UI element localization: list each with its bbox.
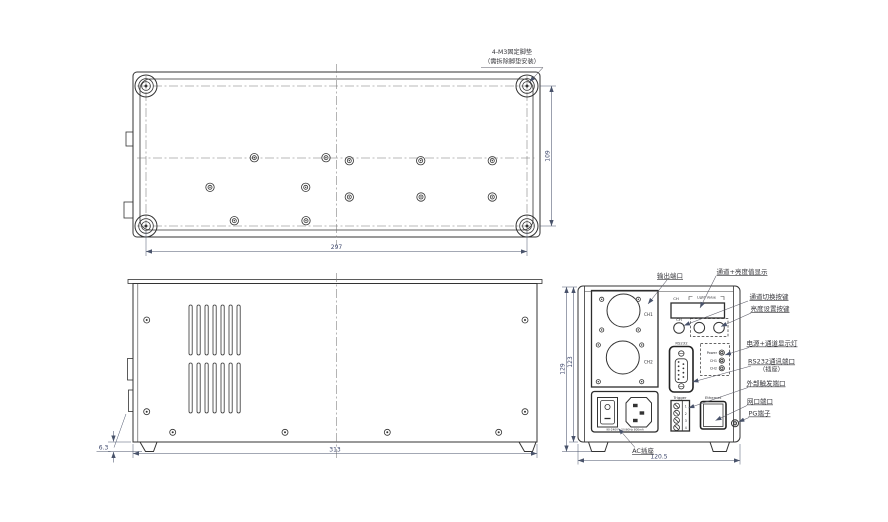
ac-rating: 90-240V~ 50/60Hz 800mA xyxy=(606,427,644,431)
led-indicators: Power CH1 CH2 xyxy=(701,344,730,376)
ac-inlet xyxy=(626,398,652,428)
trigger-label: Trigger xyxy=(672,395,687,400)
trigger-pin-1: 1 xyxy=(685,405,687,409)
dim-height-129: 129 xyxy=(560,287,593,452)
brightness-buttons-box xyxy=(691,319,729,337)
ethernet-port: Ethernet xyxy=(701,395,727,429)
callout-channel-switch: 通道切换按键 xyxy=(750,292,790,301)
callout-lan-port: 网口端口 xyxy=(747,397,773,406)
rear-panel-view: CH1 CH2 CH Light Value CH RS232 xyxy=(560,286,741,465)
display-window xyxy=(671,303,725,318)
rs232-connector: RS232 xyxy=(670,341,694,393)
brightness-up-button xyxy=(694,322,705,333)
drawing-page: 4-M3固定脚垫 （需拆除脚垫安装） 297 109 xyxy=(0,0,888,522)
panel-outline xyxy=(578,286,740,442)
ch2-label: CH2 xyxy=(644,360,653,365)
ch1-label: CH1 xyxy=(644,312,653,317)
ch1-output-connector xyxy=(607,294,640,327)
power-entry-module: 90-240V~ 50/60Hz 800mA xyxy=(592,392,659,433)
side-tab xyxy=(126,132,133,146)
dim-height-123: 123 xyxy=(567,287,578,442)
callout-trigger-port: 外部触发端口 xyxy=(747,379,786,388)
callout-output-port: 输出端口 xyxy=(657,271,683,280)
switch-off-symbol xyxy=(605,404,610,409)
rs232-label: RS232 xyxy=(675,341,688,346)
callout-ac-socket: AC插座 xyxy=(632,446,654,455)
bottom-view: 4-M3固定脚垫 （需拆除脚垫安装） 297 109 xyxy=(124,48,556,256)
plate-screw-holes xyxy=(596,297,644,384)
btn-ch-label: CH xyxy=(676,317,682,322)
note-line2: （需拆除脚垫安装） xyxy=(484,58,540,66)
display-ch-label: CH xyxy=(673,296,679,301)
side-view: 6.3 313 xyxy=(97,273,543,463)
dim-height-109: 109 xyxy=(540,86,556,226)
ch2-output-connector xyxy=(606,341,639,374)
svg-text:6.3: 6.3 xyxy=(99,445,109,452)
chassis-foot xyxy=(710,442,730,452)
brightness-down-button xyxy=(714,322,725,333)
pg-terminal xyxy=(732,420,739,427)
dim-width-297: 297 xyxy=(146,231,527,256)
output-connector-plate: CH1 CH2 xyxy=(592,291,659,388)
callout-rs232-line1: RS232通讯端口 xyxy=(748,357,795,366)
svg-text:297: 297 xyxy=(331,244,343,251)
side-outline xyxy=(133,284,537,443)
callout-display: 通道+亮度值显示 xyxy=(717,267,768,276)
trigger-terminal: Trigger 1 2 3 4 xyxy=(671,395,690,431)
note-line1: 4-M3固定脚垫 xyxy=(492,48,533,56)
dim-foot-6_3: 6.3 xyxy=(97,414,143,463)
callout-rs232-line2: （插座） xyxy=(759,366,784,374)
display-area: CH Light Value CH xyxy=(671,296,728,337)
engineering-drawing: 4-M3固定脚垫 （需拆除脚垫安装） 297 109 xyxy=(0,0,888,522)
dim-width-120_5: 120.5 xyxy=(578,444,740,465)
side-tab xyxy=(124,202,133,218)
callout-brightness-set: 亮度设置按键 xyxy=(751,304,791,313)
svg-text:109: 109 xyxy=(545,150,552,162)
rs232-pins xyxy=(678,361,685,380)
svg-text:313: 313 xyxy=(329,447,341,454)
callout-pg-terminal: PG端子 xyxy=(749,409,771,418)
bottom-screws xyxy=(206,154,497,225)
led-ch2-label: CH2 xyxy=(710,367,717,371)
channel-switch-button xyxy=(674,323,685,334)
top-lip xyxy=(128,280,542,284)
side-screws xyxy=(144,317,528,435)
trigger-pin-3: 3 xyxy=(685,419,687,423)
display-value-label: Light Value xyxy=(697,296,716,300)
led-ch1-label: CH1 xyxy=(710,359,717,363)
centerlines xyxy=(137,64,536,246)
rear-connector-profile xyxy=(128,359,134,381)
dim-width-313: 313 xyxy=(133,444,537,458)
chassis-foot xyxy=(589,442,609,452)
chassis-foot xyxy=(519,442,536,452)
chassis-foot xyxy=(140,442,157,452)
svg-text:123: 123 xyxy=(567,356,574,368)
callout-power-leds: 电源+通道显示灯 xyxy=(747,339,798,348)
led-power-label: Power xyxy=(707,351,718,355)
svg-text:129: 129 xyxy=(560,363,567,375)
trigger-pin-2: 2 xyxy=(685,412,687,416)
vent-slots xyxy=(189,305,240,413)
rear-connector-profile xyxy=(129,390,134,412)
trigger-pin-4: 4 xyxy=(685,426,687,430)
